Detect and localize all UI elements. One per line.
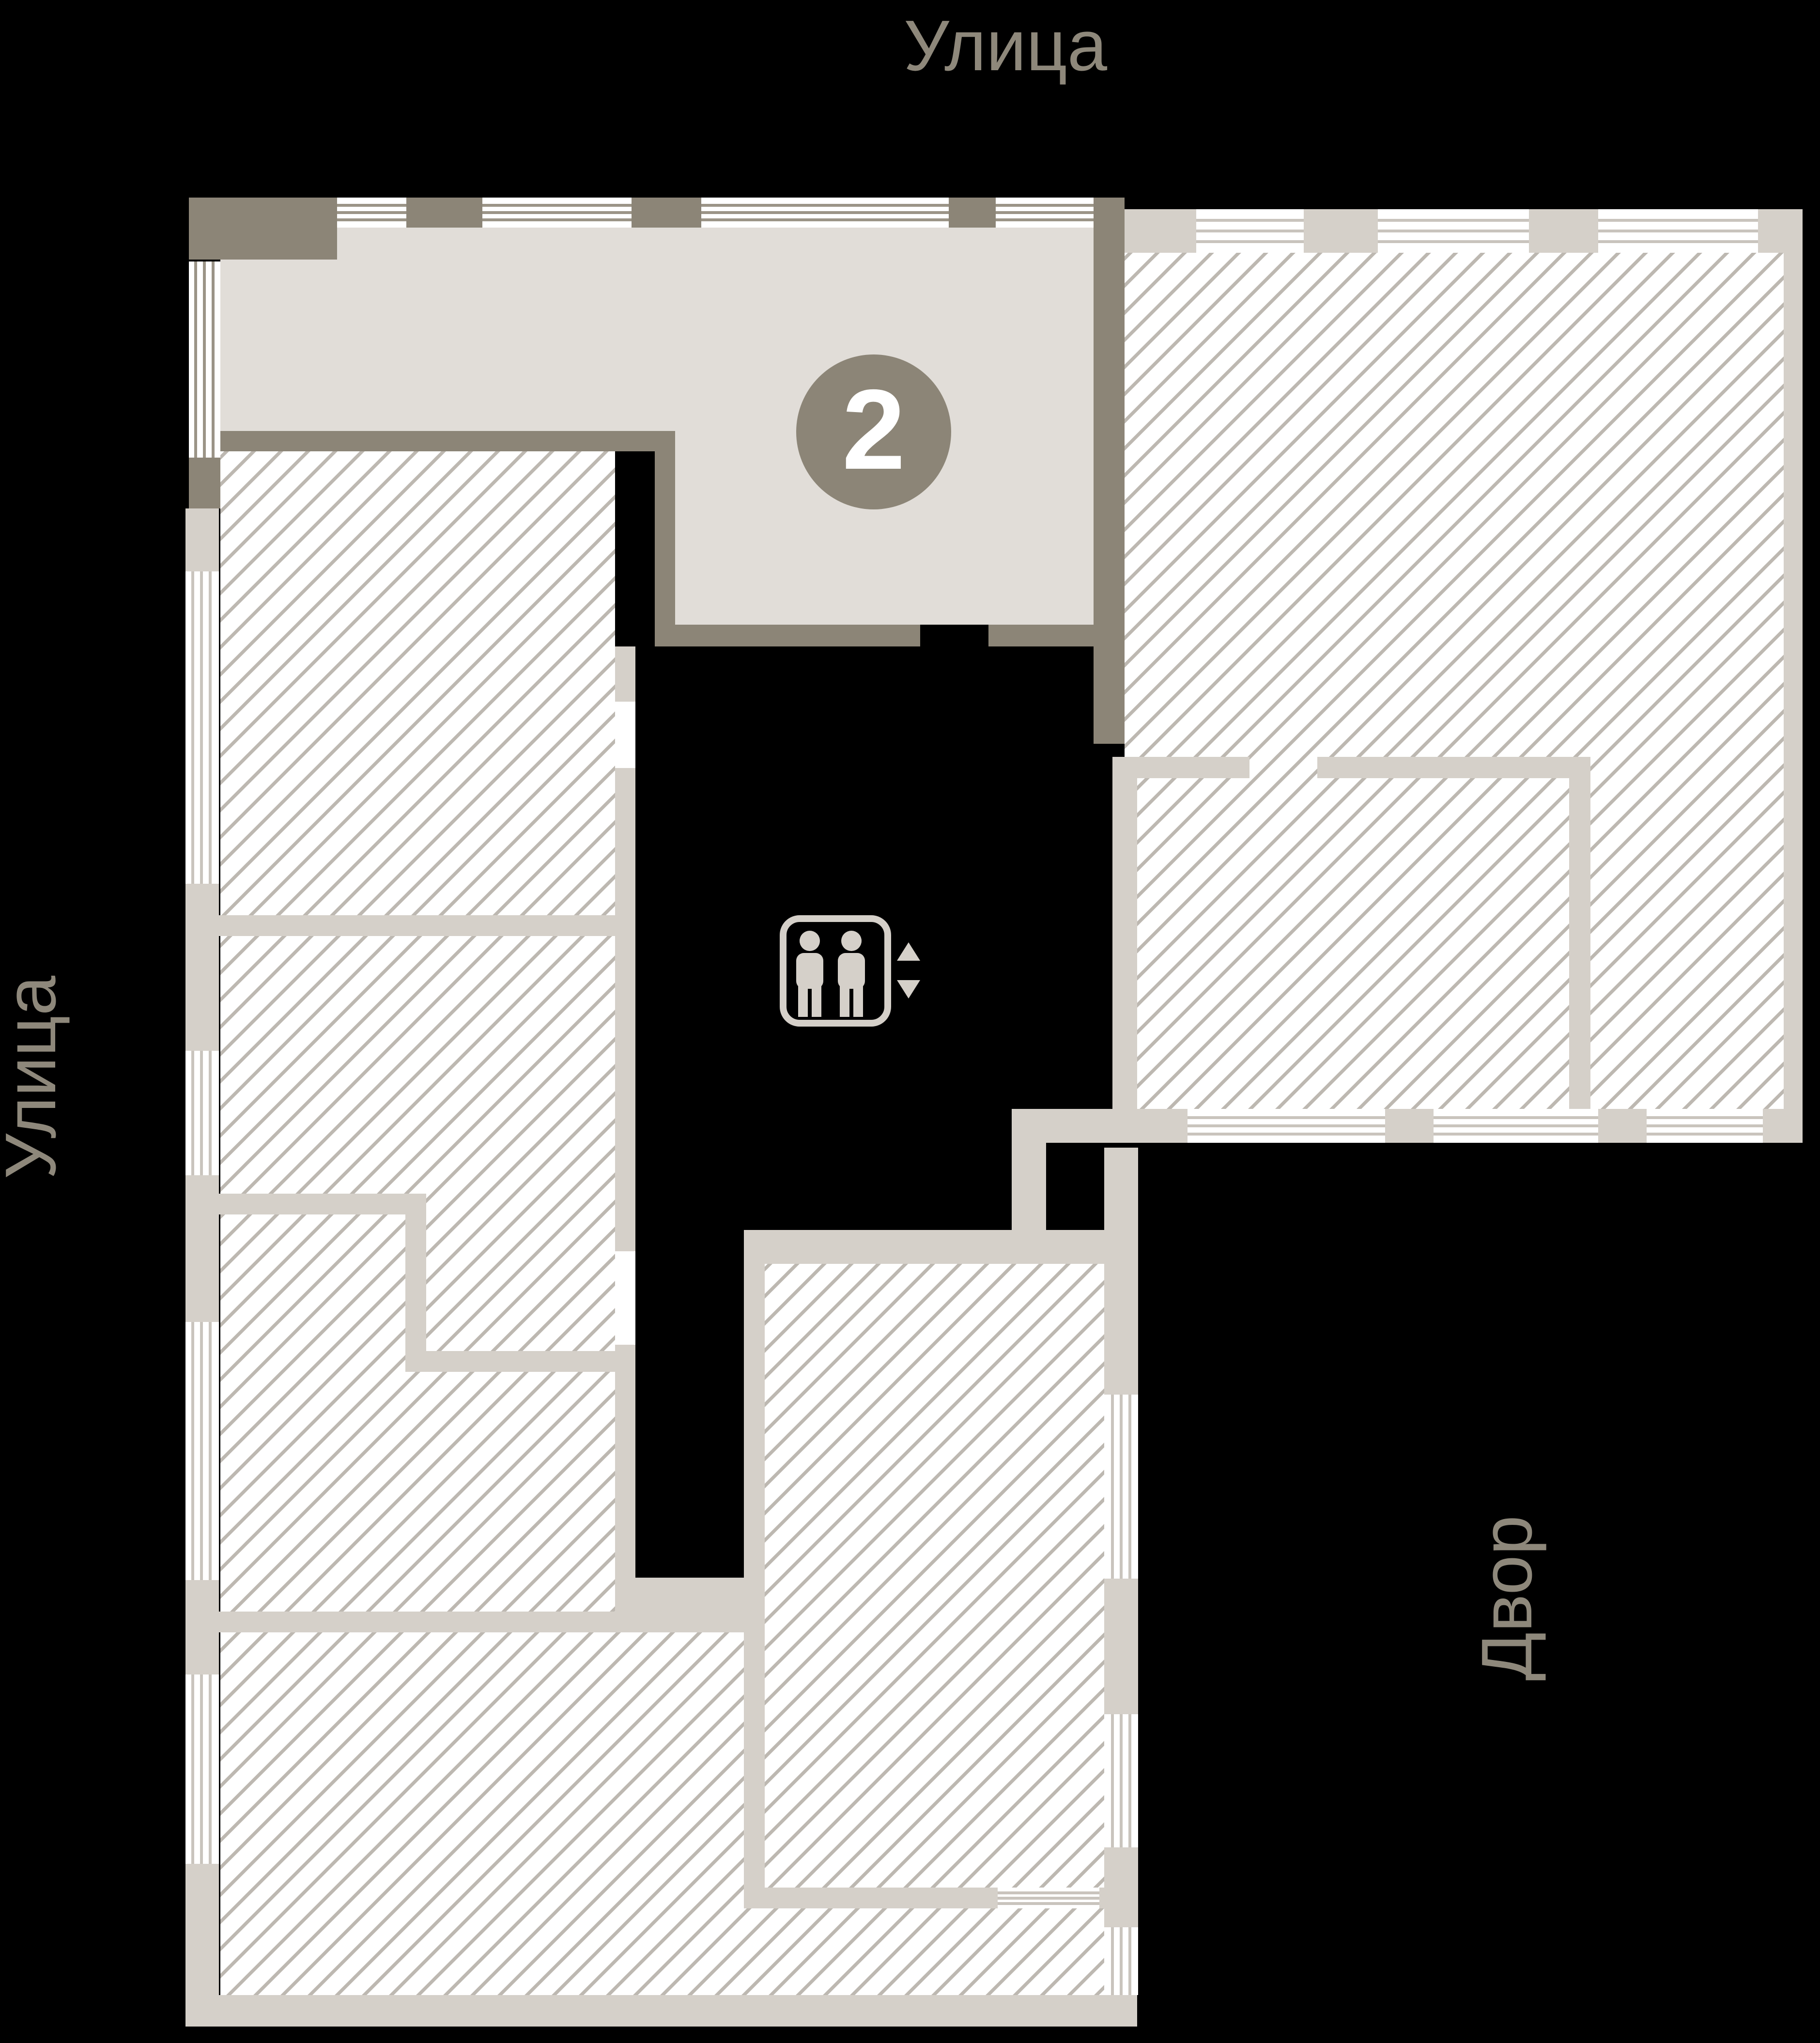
street-label-top: Улица xyxy=(904,10,1107,82)
room-bottom-middle xyxy=(765,1264,1104,1888)
room-left-1 xyxy=(220,451,615,915)
unit-2-badge[interactable]: 2 xyxy=(796,354,951,509)
floor-plan-page: Улица Улица Двор 2 xyxy=(0,0,1820,2043)
elevator-person-left xyxy=(796,931,823,1017)
courtyard-label-right: Двор xyxy=(1471,1515,1543,1681)
unit-number: 2 xyxy=(842,372,906,486)
right-bottom-outer-wall xyxy=(1104,1148,1138,1995)
triangle-down-icon xyxy=(897,980,920,998)
left-outer-wall xyxy=(185,508,219,2027)
triangle-up-icon xyxy=(897,942,920,961)
room-right-large xyxy=(1125,253,1784,1109)
elevator-person-right xyxy=(838,931,865,1017)
elevator-people-icon xyxy=(783,919,920,1023)
street-label-left: Улица xyxy=(0,976,67,1179)
floor-plan-svg xyxy=(0,0,1820,2043)
